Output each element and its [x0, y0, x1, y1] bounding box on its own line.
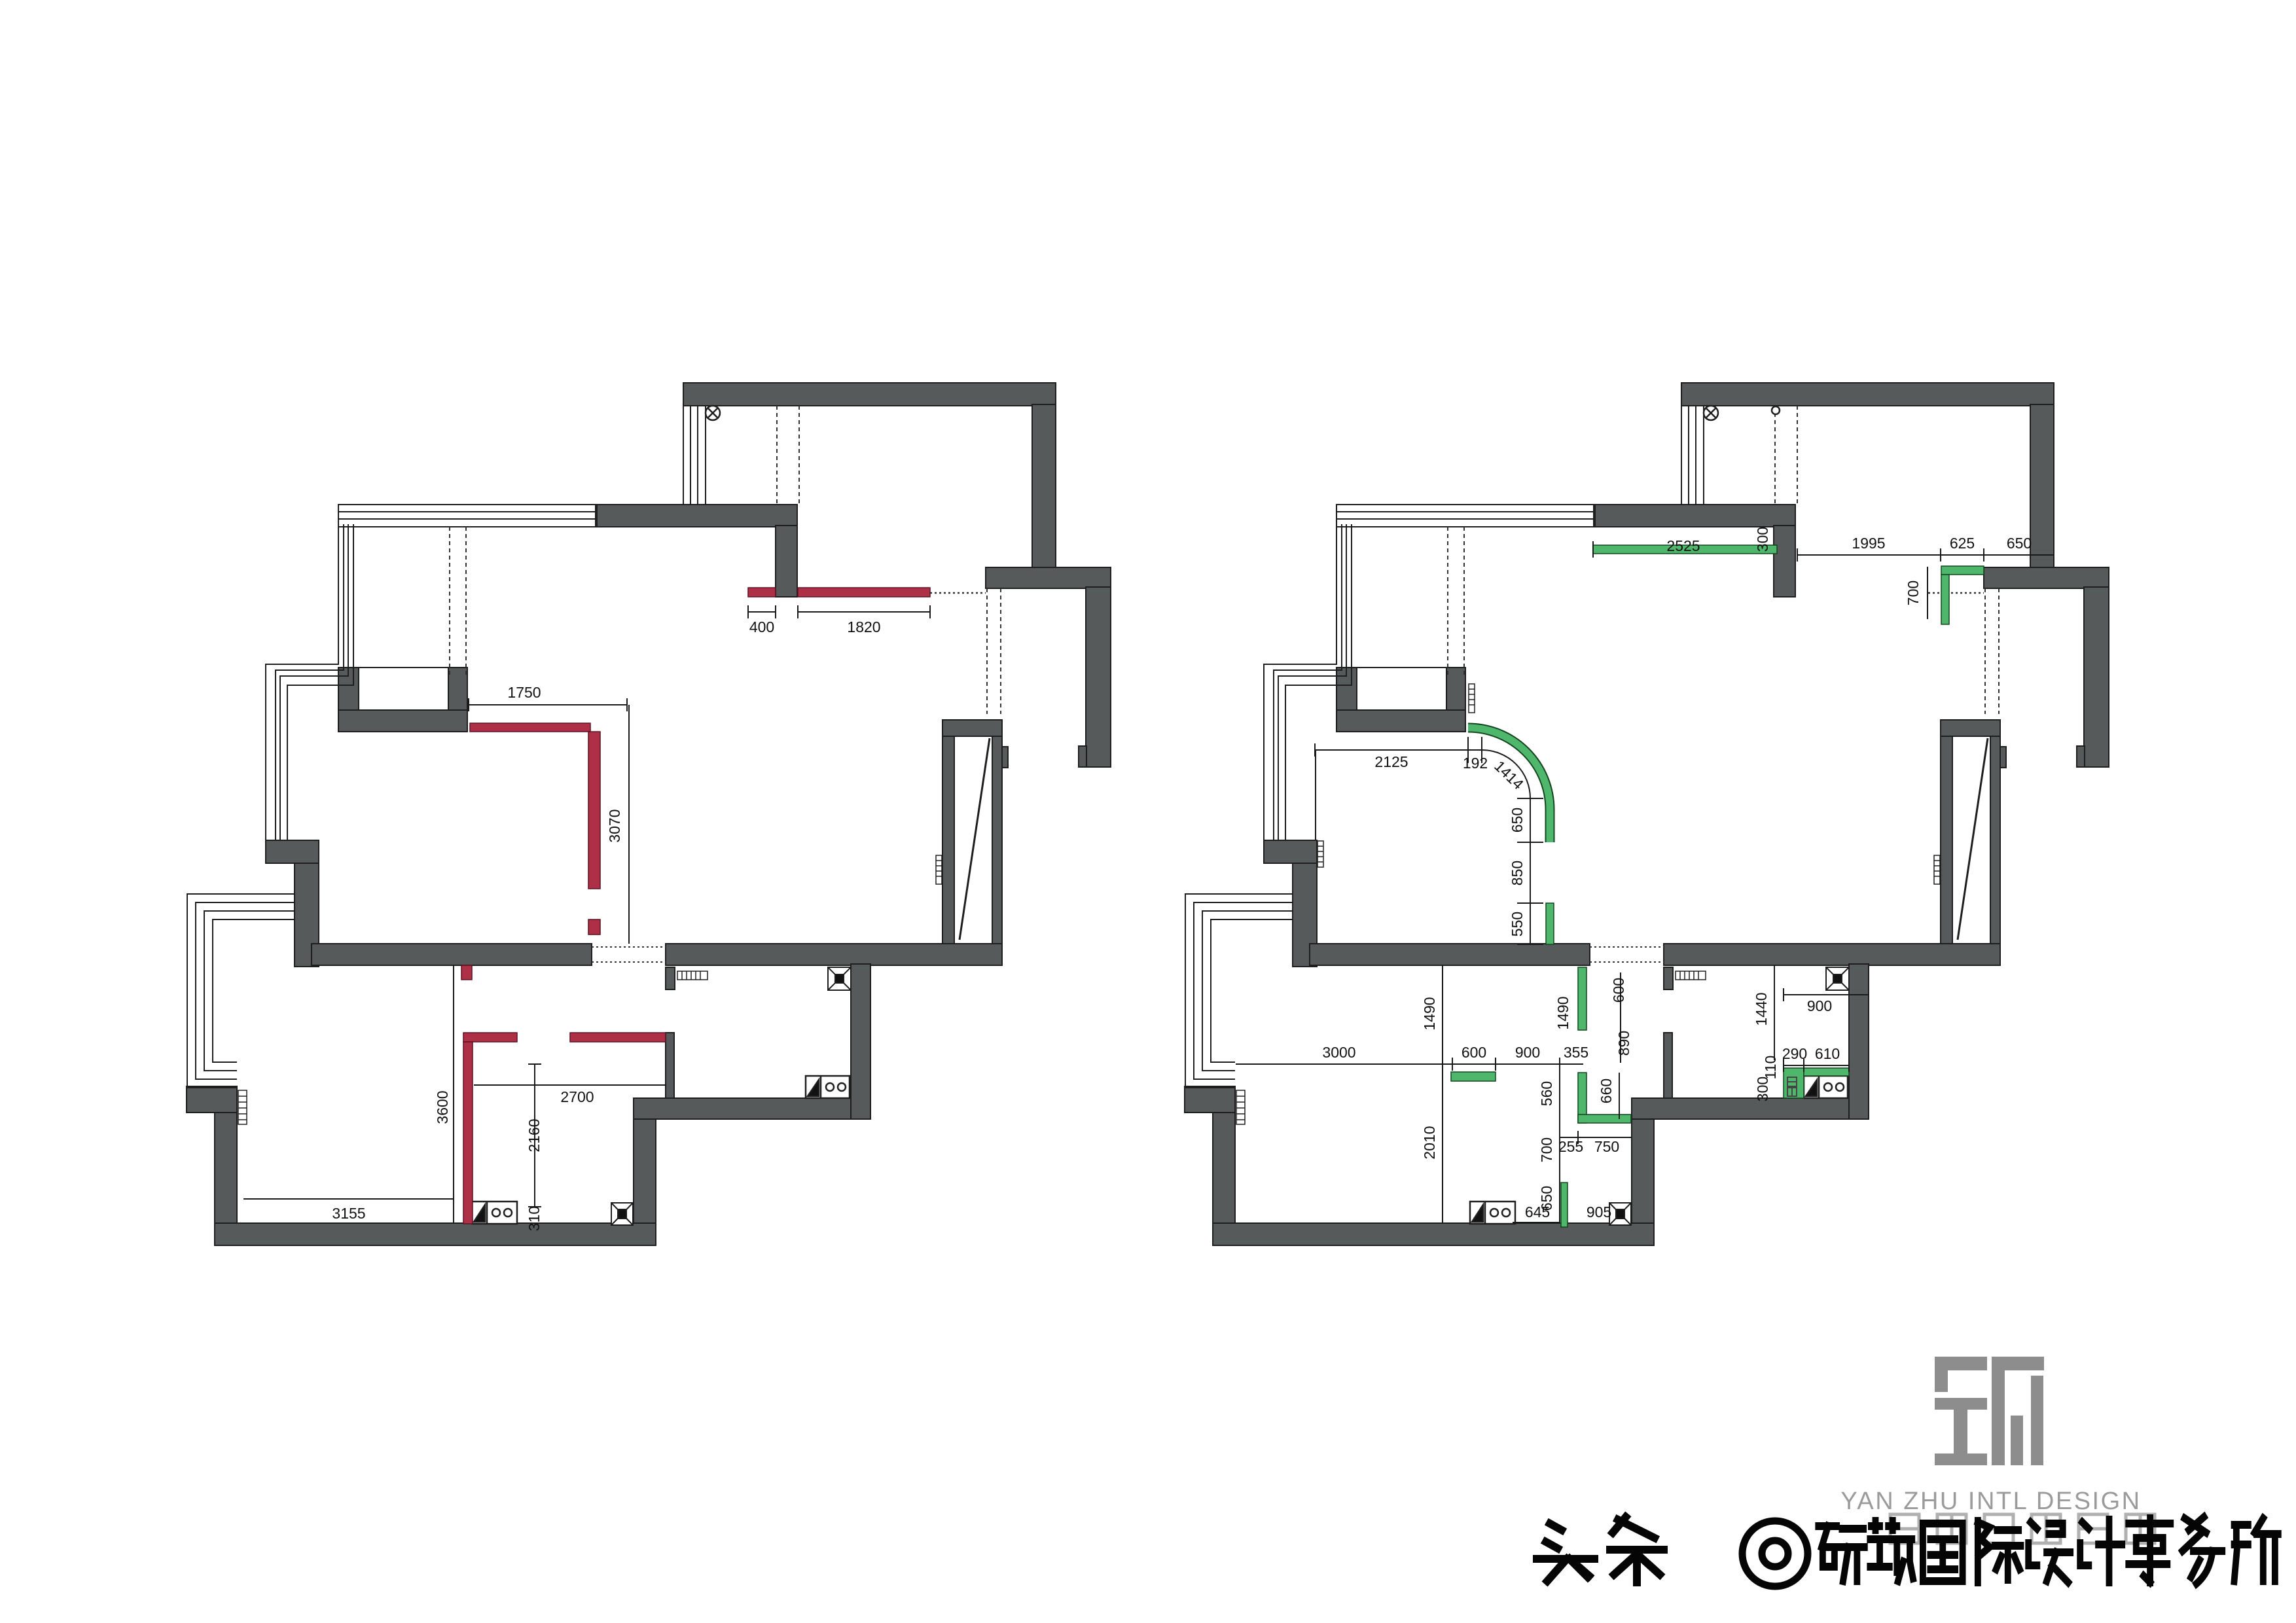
svg-text:650: 650 — [2007, 535, 2032, 552]
svg-text:900: 900 — [1807, 997, 1832, 1014]
svg-text:2125: 2125 — [1374, 753, 1408, 770]
svg-text:700: 700 — [1905, 580, 1922, 605]
svg-text:2700: 2700 — [560, 1088, 594, 1105]
svg-text:610: 610 — [1815, 1045, 1840, 1062]
svg-text:560: 560 — [1538, 1081, 1555, 1106]
svg-text:890: 890 — [1615, 1031, 1632, 1056]
svg-text:850: 850 — [1509, 861, 1526, 885]
svg-text:905: 905 — [1587, 1204, 1611, 1221]
svg-text:3000: 3000 — [1322, 1044, 1355, 1061]
svg-text:700: 700 — [1538, 1137, 1555, 1162]
svg-text:3600: 3600 — [434, 1090, 451, 1124]
svg-text:600: 600 — [1462, 1044, 1486, 1061]
svg-text:660: 660 — [1598, 1079, 1615, 1103]
svg-text:300: 300 — [1754, 527, 1771, 552]
svg-text:750: 750 — [1594, 1138, 1619, 1155]
svg-text:3155: 3155 — [332, 1205, 365, 1222]
svg-text:300: 300 — [1754, 1077, 1771, 1101]
svg-text:255: 255 — [1558, 1138, 1583, 1155]
svg-text:645: 645 — [1525, 1204, 1550, 1221]
svg-text:1490: 1490 — [1554, 996, 1571, 1029]
svg-text:110: 110 — [1762, 1056, 1779, 1080]
svg-text:1490: 1490 — [1421, 997, 1438, 1030]
svg-text:600: 600 — [1610, 978, 1627, 1003]
svg-text:310: 310 — [526, 1206, 543, 1231]
svg-text:192: 192 — [1463, 755, 1488, 772]
svg-text:625: 625 — [1950, 535, 1975, 552]
svg-text:400: 400 — [749, 618, 774, 635]
svg-text:2160: 2160 — [526, 1118, 543, 1152]
svg-text:550: 550 — [1509, 912, 1526, 936]
svg-text:1820: 1820 — [847, 618, 880, 635]
svg-text:2010: 2010 — [1421, 1126, 1438, 1159]
svg-text:900: 900 — [1515, 1044, 1540, 1061]
svg-text:3070: 3070 — [606, 809, 623, 842]
svg-text:650: 650 — [1509, 808, 1526, 832]
svg-text:2525: 2525 — [1666, 537, 1700, 554]
svg-text:YAN ZHU INTL DESIGN: YAN ZHU INTL DESIGN — [1840, 1488, 2141, 1515]
svg-text:1995: 1995 — [1852, 535, 1885, 552]
svg-text:355: 355 — [1564, 1044, 1588, 1061]
svg-text:290: 290 — [1782, 1045, 1807, 1062]
svg-text:1414: 1414 — [1491, 757, 1527, 793]
svg-text:1440: 1440 — [1753, 992, 1770, 1026]
svg-text:1750: 1750 — [507, 684, 541, 701]
